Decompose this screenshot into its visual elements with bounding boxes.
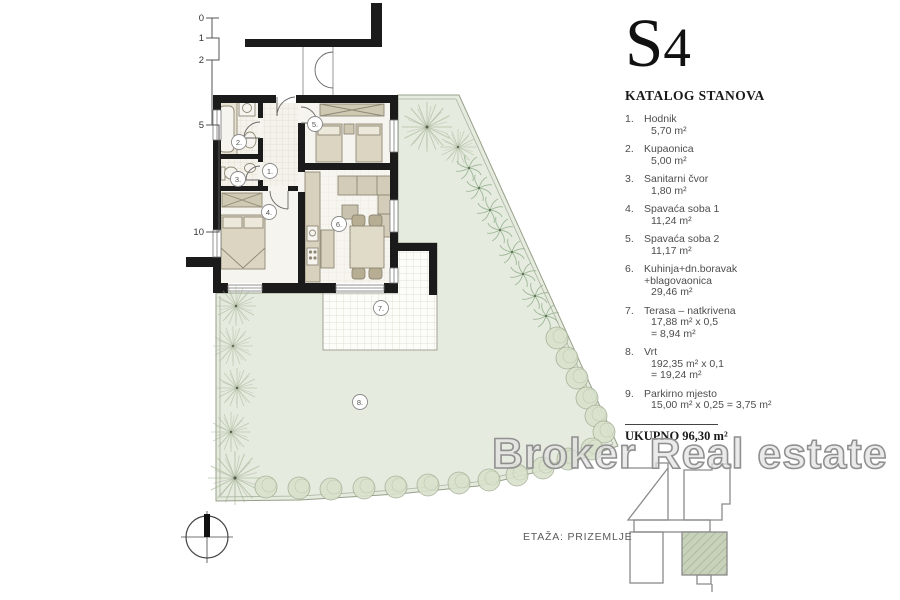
bush-symbol — [546, 327, 568, 349]
room-number: 2. — [625, 144, 634, 156]
svg-text:2: 2 — [199, 55, 204, 66]
room-list-item: 9. Parkirno mjesto 15,00 m² x 0,25 = 3,7… — [625, 389, 895, 412]
wc-sink — [245, 164, 256, 173]
svg-text:3.: 3. — [235, 175, 241, 184]
kitchen-island — [321, 230, 334, 268]
room-name: Vrt — [644, 347, 895, 359]
svg-text:5.: 5. — [312, 120, 318, 129]
room-number: 5. — [625, 234, 634, 246]
kitchen-counter — [305, 172, 320, 282]
wardrobe-bedroom1 — [222, 193, 262, 207]
bush-symbol — [417, 474, 439, 496]
svg-text:8.: 8. — [357, 398, 363, 407]
svg-text:0: 0 — [199, 13, 204, 24]
room-list-item: 8. Vrt 192,35 m² x 0,1 = 19,24 m² — [625, 347, 895, 382]
svg-text:6.: 6. — [336, 220, 342, 229]
north-compass-icon — [181, 511, 233, 563]
nightstand — [344, 124, 354, 134]
room-number: 7. — [625, 306, 634, 318]
bush-symbol — [320, 478, 342, 500]
svg-text:7.: 7. — [378, 304, 384, 313]
room-area: 11,24 m² — [644, 216, 895, 228]
room-number: 8. — [625, 347, 634, 359]
total-divider — [625, 424, 718, 425]
room-number: 3. — [625, 174, 634, 186]
entry-double-door — [315, 52, 333, 88]
room-number: 6. — [625, 264, 634, 276]
room-area: 11,17 m² — [644, 246, 895, 258]
bush-symbol — [566, 367, 588, 389]
room-name: Kupaonica — [644, 144, 895, 156]
bush-symbol — [353, 477, 375, 499]
scale-ruler-labels: 0 1 2 5 10 — [193, 13, 204, 238]
svg-text:10: 10 — [193, 227, 204, 238]
room-area: = 8,94 m² — [644, 329, 895, 341]
room-number: 4. — [625, 204, 634, 216]
svg-text:5: 5 — [199, 120, 204, 131]
room-list-item: 6. Kuhinja+dn.boravak +blagovaonica 29,4… — [625, 264, 895, 299]
room-list-item: 3. Sanitarni čvor 1,80 m² — [625, 174, 895, 197]
room-list-item: 4. Spavaća soba 1 11,24 m² — [625, 204, 895, 227]
room-name: Hodnik — [644, 114, 895, 126]
bush-symbol — [448, 472, 470, 494]
bush-symbol — [385, 476, 407, 498]
unit-title-letter: S — [625, 5, 663, 81]
room-area: 5,00 m² — [644, 156, 895, 168]
room-number: 9. — [625, 389, 634, 401]
unit-title: S4 — [625, 8, 895, 82]
room-name: Spavaća soba 1 — [644, 204, 895, 216]
bush-symbol — [255, 476, 277, 498]
bush-symbol — [556, 347, 578, 369]
double-bed — [221, 215, 265, 269]
room-area: = 19,24 m² — [644, 370, 895, 382]
room-area: 29,46 m² — [644, 287, 895, 299]
room-list-item: 1. Hodnik 5,70 m² — [625, 114, 895, 137]
room-list-item: 2. Kupaonica 5,00 m² — [625, 144, 895, 167]
info-panel: S4 KATALOG STANOVA 1. Hodnik 5,70 m² 2. … — [625, 8, 895, 444]
room-name: Spavaća soba 2 — [644, 234, 895, 246]
room-list-item: 7. Terasa – natkrivena 17,88 m² x 0,5 = … — [625, 306, 895, 341]
room-area: 15,00 m² x 0,25 = 3,75 m² — [644, 400, 895, 412]
room-name: Kuhinja+dn.boravak — [644, 264, 895, 276]
watermark: Broker Real estate — [492, 430, 888, 479]
wardrobe-bedroom2 — [320, 104, 384, 116]
single-bed-2 — [356, 124, 382, 162]
room-list-item: 5. Spavaća soba 2 11,17 m² — [625, 234, 895, 257]
floor-level-label: ETAŽA: PRIZEMLJE — [523, 531, 632, 543]
floor-plan-page: 1. 2. 3. 4. 5. 6. 7. 8. 0 1 2 5 10 — [0, 0, 900, 600]
svg-text:1: 1 — [199, 33, 204, 44]
svg-text:4.: 4. — [266, 208, 272, 217]
key-plan — [628, 463, 730, 592]
room-name: Sanitarni čvor — [644, 174, 895, 186]
svg-text:2.: 2. — [236, 138, 242, 147]
room-area: 5,70 m² — [644, 126, 895, 138]
room-number: 1. — [625, 114, 634, 126]
room-list: 1. Hodnik 5,70 m² 2. Kupaonica 5,00 m² 3… — [625, 114, 895, 412]
unit-title-number: 4 — [663, 17, 691, 78]
entry-corridor — [303, 47, 333, 95]
bush-symbol — [288, 477, 310, 499]
svg-text:1.: 1. — [267, 167, 273, 176]
highlighted-unit — [682, 532, 727, 575]
room-area: 1,80 m² — [644, 186, 895, 198]
catalog-heading: KATALOG STANOVA — [625, 88, 895, 104]
room-area: 17,88 m² x 0,5 — [644, 317, 895, 329]
